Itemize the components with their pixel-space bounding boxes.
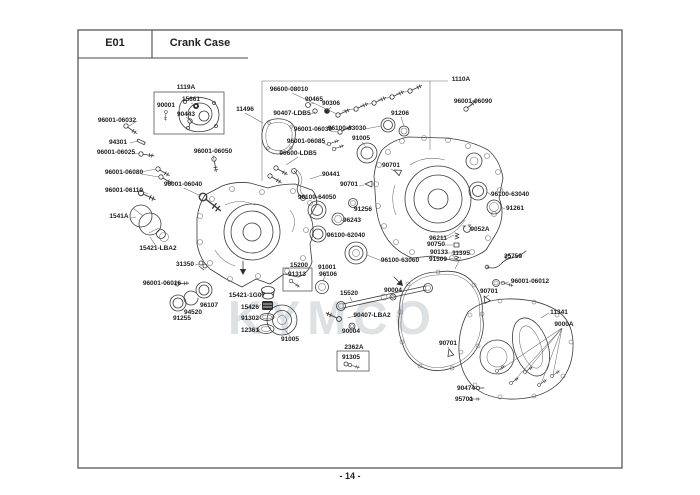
part-label: 96600-08010 xyxy=(270,86,309,93)
spring-96211 xyxy=(455,233,459,239)
seal-96107 xyxy=(196,282,212,298)
part-label: 91256 xyxy=(354,206,372,213)
bolt-96001-06032 xyxy=(123,123,138,135)
part-label: 9000A xyxy=(554,321,573,328)
clip-90474 xyxy=(476,386,484,389)
part-label: 90443 xyxy=(177,111,195,118)
grommet-15661 xyxy=(193,103,199,109)
part-label: 96001-06025 xyxy=(97,149,136,156)
part-label: 91005 xyxy=(352,135,370,142)
part-label: 91261 xyxy=(506,205,524,212)
part-label: 96001-06030 xyxy=(294,126,333,133)
part-label: 96001-06012 xyxy=(511,278,550,285)
part-label: 96001-06110 xyxy=(105,187,143,194)
bolt-90407-lba2 xyxy=(325,311,342,322)
part-label: 94301 xyxy=(109,139,127,146)
part-label: 15421-LBA2 xyxy=(139,245,177,252)
part-label: 11341 xyxy=(550,309,568,316)
page-number: - 14 - xyxy=(0,471,700,481)
part-label: 91305 xyxy=(342,354,360,361)
part-label: 90306 xyxy=(322,100,340,107)
part-label: 11496 xyxy=(236,106,254,113)
part-label: 90407-LBA2 xyxy=(353,312,391,319)
part-label: 91206 xyxy=(391,110,409,117)
cap-12361 xyxy=(258,325,274,334)
bearing-96100-63040 xyxy=(469,182,487,200)
part-label: 31350 xyxy=(176,261,194,268)
part-label: 96100-62040 xyxy=(327,232,366,239)
bolt-96600-ldb5b xyxy=(267,173,282,184)
screen-15426 xyxy=(262,301,273,310)
bearing-96100-63030 xyxy=(381,118,395,132)
part-label: 96600-LDB5 xyxy=(279,150,317,157)
gasket-11395 xyxy=(398,270,484,371)
part-label: 96100-63040 xyxy=(491,191,530,198)
part-label: 96001-06016 xyxy=(143,280,182,287)
part-label: 96001-06085 xyxy=(287,138,326,145)
part-label: 90465 xyxy=(305,96,323,103)
bearing-91005-top xyxy=(357,143,377,163)
parts-catalog-page: KYMCO xyxy=(0,0,700,495)
oil-filter-1541a xyxy=(130,205,169,242)
cover-screws-9000a xyxy=(495,328,562,387)
part-label: 96001-06090 xyxy=(454,98,493,105)
bolt-90001 xyxy=(164,110,168,120)
part-label: 1541A xyxy=(109,213,128,220)
bolt-96600-ldb5a xyxy=(273,165,288,176)
part-label: 91001 xyxy=(318,264,336,271)
part-label: 96243 xyxy=(343,217,361,224)
pin-90750 xyxy=(454,243,459,247)
part-label: 9052A xyxy=(470,226,489,233)
part-label: 91005 xyxy=(281,336,299,343)
part-label: 91302 xyxy=(241,315,259,322)
part-label: 90474 xyxy=(457,385,475,392)
part-label: 96001-06032 xyxy=(98,117,137,124)
part-label: 15200 xyxy=(290,262,308,269)
part-label: 90133 xyxy=(430,249,448,256)
part-label: 90001 xyxy=(157,102,175,109)
part-label: 15520 xyxy=(340,290,358,297)
part-label: 96001-06080 xyxy=(105,169,144,176)
part-label: 90701 xyxy=(439,340,457,347)
part-label: 96100-64050 xyxy=(298,194,337,201)
ring-91001-96106 xyxy=(316,281,329,294)
part-label: 96100-63060 xyxy=(381,257,420,264)
part-label: 95701 xyxy=(455,396,473,403)
part-label: 90004 xyxy=(342,328,360,335)
part-label: 90750 xyxy=(427,241,445,248)
snap-ring-94520 xyxy=(184,291,198,305)
part-label: 90701 xyxy=(382,162,400,169)
part-label: 96100-63030 xyxy=(328,125,367,132)
diagram-title: Crank Case xyxy=(152,37,248,49)
bracket-31350 xyxy=(199,261,207,270)
ring-91206 xyxy=(399,126,409,136)
part-label: 91255 xyxy=(173,315,191,322)
part-label: 1110A xyxy=(452,76,471,83)
part-label: 96001-06050 xyxy=(194,148,233,155)
part-label: 90701 xyxy=(340,181,358,188)
bolt-96001-06085b xyxy=(332,144,345,151)
part-label: 90441 xyxy=(322,171,340,178)
leader-lines xyxy=(129,91,549,400)
part-labels: 1119A1566190001904431149696001-060509600… xyxy=(97,76,574,403)
part-label: 15661 xyxy=(182,96,200,103)
part-label: 15421-1G07 xyxy=(229,292,266,299)
gasket-11496 xyxy=(262,119,296,154)
exploded-diagram: 1119A1566190001904431149696001-060509600… xyxy=(0,0,700,495)
part-label: 91313 xyxy=(288,271,306,278)
part-label: 90004 xyxy=(384,287,402,294)
part-label: 1119A xyxy=(177,84,196,91)
part-label: 90701 xyxy=(480,288,498,295)
bolt-96001-06025 xyxy=(139,152,155,158)
bolt-96001-06085a xyxy=(327,139,340,146)
diagram-code: E01 xyxy=(78,37,152,49)
bolt-96001-06040 xyxy=(198,192,223,214)
bearing-96100-63060 xyxy=(345,242,367,264)
ring-91261 xyxy=(487,200,501,214)
washer-90465 xyxy=(306,103,311,108)
part-label: 96001-06040 xyxy=(164,181,203,188)
part-label: 96106 xyxy=(319,271,337,278)
part-label: 12361 xyxy=(241,327,259,334)
part-label: 91509 xyxy=(429,256,447,263)
part-label: 35759 xyxy=(504,253,522,260)
bolt-96001-06050 xyxy=(211,156,218,172)
top-bolt-fan xyxy=(335,84,423,118)
part-label: 2362A xyxy=(344,344,363,351)
dowel-94301 xyxy=(137,139,145,145)
part-label: 96107 xyxy=(200,302,218,309)
part-label: 15426 xyxy=(241,304,259,311)
part-label: 90407-LDB5 xyxy=(273,110,311,117)
part-label: 11395 xyxy=(452,250,470,257)
